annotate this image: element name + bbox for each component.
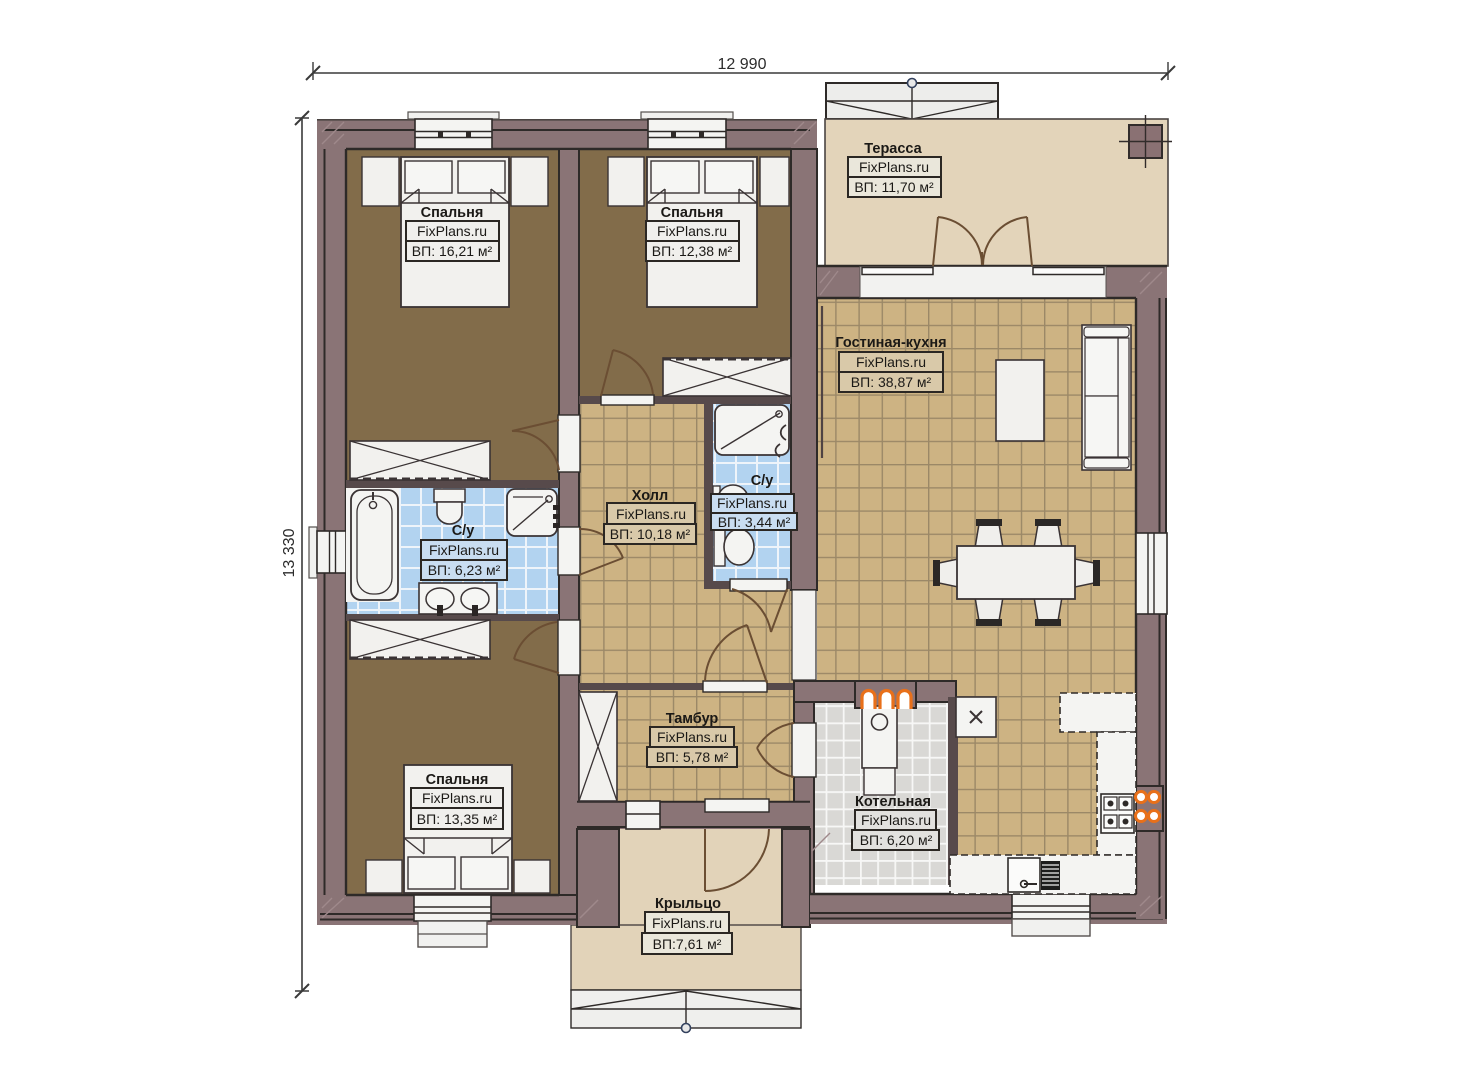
svg-text:FixPlans.ru: FixPlans.ru — [657, 729, 727, 745]
svg-text:Спальня: Спальня — [661, 205, 724, 221]
svg-text:FixPlans.ru: FixPlans.ru — [652, 915, 722, 931]
svg-text:ВП: 11,70 м²: ВП: 11,70 м² — [854, 179, 934, 195]
svg-text:ВП: 6,20 м²: ВП: 6,20 м² — [860, 832, 933, 848]
svg-text:Котельная: Котельная — [855, 794, 931, 810]
svg-text:ВП: 3,44 м²: ВП: 3,44 м² — [718, 514, 791, 530]
svg-text:Гостиная-кухня: Гостиная-кухня — [835, 335, 946, 351]
svg-text:ВП: 13,35 м²: ВП: 13,35 м² — [417, 811, 498, 827]
svg-text:ВП: 10,18 м²: ВП: 10,18 м² — [610, 526, 691, 542]
svg-text:12 990: 12 990 — [718, 56, 767, 73]
svg-text:FixPlans.ru: FixPlans.ru — [859, 159, 929, 175]
svg-text:FixPlans.ru: FixPlans.ru — [429, 542, 499, 558]
svg-text:ВП: 38,87 м²: ВП: 38,87 м² — [851, 374, 932, 390]
svg-text:С/у: С/у — [452, 523, 475, 539]
svg-text:FixPlans.ru: FixPlans.ru — [422, 790, 492, 806]
svg-text:FixPlans.ru: FixPlans.ru — [856, 354, 926, 370]
svg-text:ВП: 5,78 м²: ВП: 5,78 м² — [656, 749, 729, 765]
svg-text:FixPlans.ru: FixPlans.ru — [717, 495, 787, 511]
svg-text:ВП: 16,21 м²: ВП: 16,21 м² — [412, 243, 493, 259]
svg-text:ВП:7,61 м²: ВП:7,61 м² — [653, 936, 722, 952]
svg-text:Холл: Холл — [632, 488, 668, 504]
svg-text:ВП: 6,23 м²: ВП: 6,23 м² — [428, 562, 501, 578]
svg-text:ВП: 12,38 м²: ВП: 12,38 м² — [652, 243, 733, 259]
svg-text:FixPlans.ru: FixPlans.ru — [417, 223, 487, 239]
svg-text:С/у: С/у — [751, 473, 774, 489]
svg-text:Спальня: Спальня — [426, 772, 489, 788]
svg-text:FixPlans.ru: FixPlans.ru — [616, 506, 686, 522]
svg-text:13 330: 13 330 — [281, 528, 298, 577]
svg-text:FixPlans.ru: FixPlans.ru — [657, 223, 727, 239]
svg-text:FixPlans.ru: FixPlans.ru — [861, 812, 931, 828]
svg-text:Тамбур: Тамбур — [666, 711, 719, 727]
svg-text:Крыльцо: Крыльцо — [655, 896, 721, 912]
svg-text:Спальня: Спальня — [421, 205, 484, 221]
svg-text:Терасса: Терасса — [864, 141, 922, 157]
